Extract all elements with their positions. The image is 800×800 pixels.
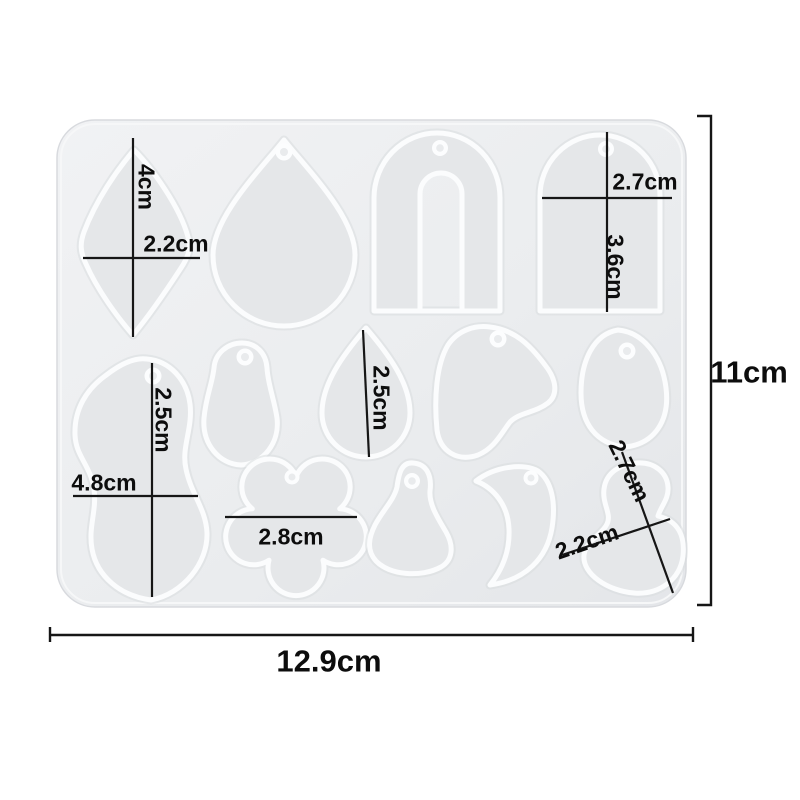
dim-label-leaf-height: 4cm <box>135 164 158 210</box>
dim-label-tag-width: 2.7cm <box>612 171 677 194</box>
overall-height-label: 11cm <box>710 357 788 388</box>
mold-illustration <box>0 0 800 800</box>
dim-label-teardrop-length: 2.5cm <box>370 365 393 430</box>
dim-label-leaf-width: 2.2cm <box>143 233 208 256</box>
dim-label-blob-height: 2.5cm <box>152 387 175 452</box>
pear-cavity <box>204 343 278 465</box>
overall-height-bracket <box>697 116 711 605</box>
overall-width-bracket <box>50 627 693 642</box>
overall-width-label: 12.9cm <box>276 646 381 677</box>
dim-label-tag-height: 3.6cm <box>604 234 627 299</box>
arched-tag-cavity <box>540 135 660 311</box>
product-photo: 4cm 2.2cm 2.7cm 3.6cm 2.5cm 2.5cm 4.8cm … <box>0 0 800 800</box>
dim-label-flower-width: 2.8cm <box>258 526 323 549</box>
egg-cavity <box>581 330 667 447</box>
dim-label-blob-width: 4.8cm <box>71 472 136 495</box>
